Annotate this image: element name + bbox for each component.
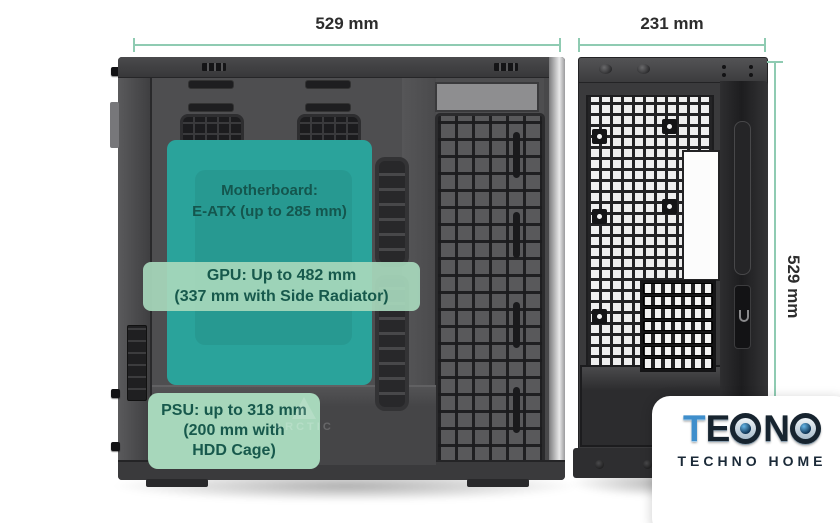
- rear-hinge-tab: [110, 102, 119, 148]
- screw-hole: [722, 65, 726, 69]
- logo-letter-e: E: [705, 410, 730, 447]
- mount-pad: [662, 119, 677, 134]
- brand-logo: T E N: [682, 410, 822, 447]
- side-panel-edge: [720, 81, 768, 450]
- dimension-label-side-width: 529 mm: [133, 14, 561, 34]
- gpu-spec-label: GPU: Up to 482 mm (337 mm with Side Radi…: [143, 262, 420, 311]
- dimension-label-height: 529 mm: [783, 255, 803, 318]
- cable-slot: [188, 103, 234, 112]
- panel-slot: [734, 121, 751, 275]
- screw-hole: [722, 73, 726, 77]
- front-top-vent: [435, 82, 539, 112]
- cable-slot: [305, 103, 351, 112]
- logo-letter-o-icon: [790, 413, 821, 444]
- case-foot: [643, 460, 652, 469]
- case-foot: [595, 460, 604, 469]
- logo-letter-n: N: [762, 410, 789, 447]
- mount-pad: [592, 309, 607, 324]
- brand-logo-card: T E N TECHNO HOME: [652, 396, 840, 523]
- mount-pad: [592, 129, 607, 144]
- case-foot: [467, 479, 529, 487]
- brand-tagline: TECHNO HOME: [678, 453, 827, 469]
- logo-letter-o-icon: [730, 413, 761, 444]
- mount-pad: [662, 199, 677, 214]
- pcie-slot: [643, 283, 713, 294]
- top-knob: [637, 64, 650, 74]
- dimension-tick: [133, 38, 135, 52]
- mesh-slot: [513, 302, 520, 348]
- psu-spec-line3: HDD Cage): [148, 441, 320, 461]
- gpu-spec-line1: GPU: Up to 482 mm: [143, 266, 420, 287]
- expansion-slots-rear: [127, 325, 147, 401]
- motherboard-spec-line2: E-ATX (up to 285 mm): [167, 201, 372, 222]
- pcie-slot: [643, 308, 713, 319]
- motherboard-io-cutout: [682, 150, 720, 281]
- mesh-slot: [513, 212, 520, 258]
- top-knob: [599, 64, 612, 74]
- mesh-slot: [513, 387, 520, 433]
- psu-spec-line1: PSU: up to 318 mm: [148, 401, 320, 421]
- case-front-edge: [549, 57, 565, 464]
- product-dimension-diagram: 529 mm 231 mm 529 mm: [0, 0, 840, 523]
- thumbscrew: [111, 389, 120, 398]
- thumbscrew: [111, 442, 120, 451]
- gpu-spec-line2: (337 mm with Side Radiator): [143, 287, 420, 308]
- case-side-view: Motherboard: E-ATX (up to 285 mm) GPU: U…: [118, 57, 565, 480]
- screw-hole: [749, 65, 753, 69]
- front-fan-mesh: [435, 113, 545, 467]
- pcie-slot-covers: [640, 280, 716, 372]
- mount-pad: [592, 209, 607, 224]
- psu-spec-line2: (200 mm with: [148, 421, 320, 441]
- pcie-slot: [643, 321, 713, 332]
- cable-slot: [305, 80, 351, 89]
- dimension-tick: [578, 38, 580, 52]
- pcie-slot: [643, 333, 713, 344]
- pcie-slot: [643, 346, 713, 357]
- top-vent: [202, 63, 226, 71]
- dimension-tick: [559, 38, 561, 52]
- case-foot: [146, 479, 208, 487]
- motherboard-spec-line1: Motherboard:: [167, 180, 372, 201]
- dimension-line-front-width: [578, 44, 766, 46]
- top-vent: [494, 63, 518, 71]
- dimension-label-front-width: 231 mm: [578, 14, 766, 34]
- screw-hole: [749, 73, 753, 77]
- pcie-slot: [643, 296, 713, 307]
- pcie-slot: [643, 358, 713, 369]
- cable-grommet-vertical: [375, 157, 409, 267]
- panel-latch-handle: [734, 285, 751, 349]
- dimension-line-side-width: [133, 44, 561, 46]
- mesh-slot: [513, 132, 520, 178]
- psu-spec-label: PSU: up to 318 mm (200 mm with HDD Cage): [148, 393, 320, 469]
- logo-letter-t: T: [682, 410, 705, 447]
- case-top-panel: [578, 57, 768, 83]
- motherboard-spec-label: Motherboard: E-ATX (up to 285 mm): [167, 180, 372, 222]
- dimension-tick: [764, 38, 766, 52]
- cable-slot: [188, 80, 234, 89]
